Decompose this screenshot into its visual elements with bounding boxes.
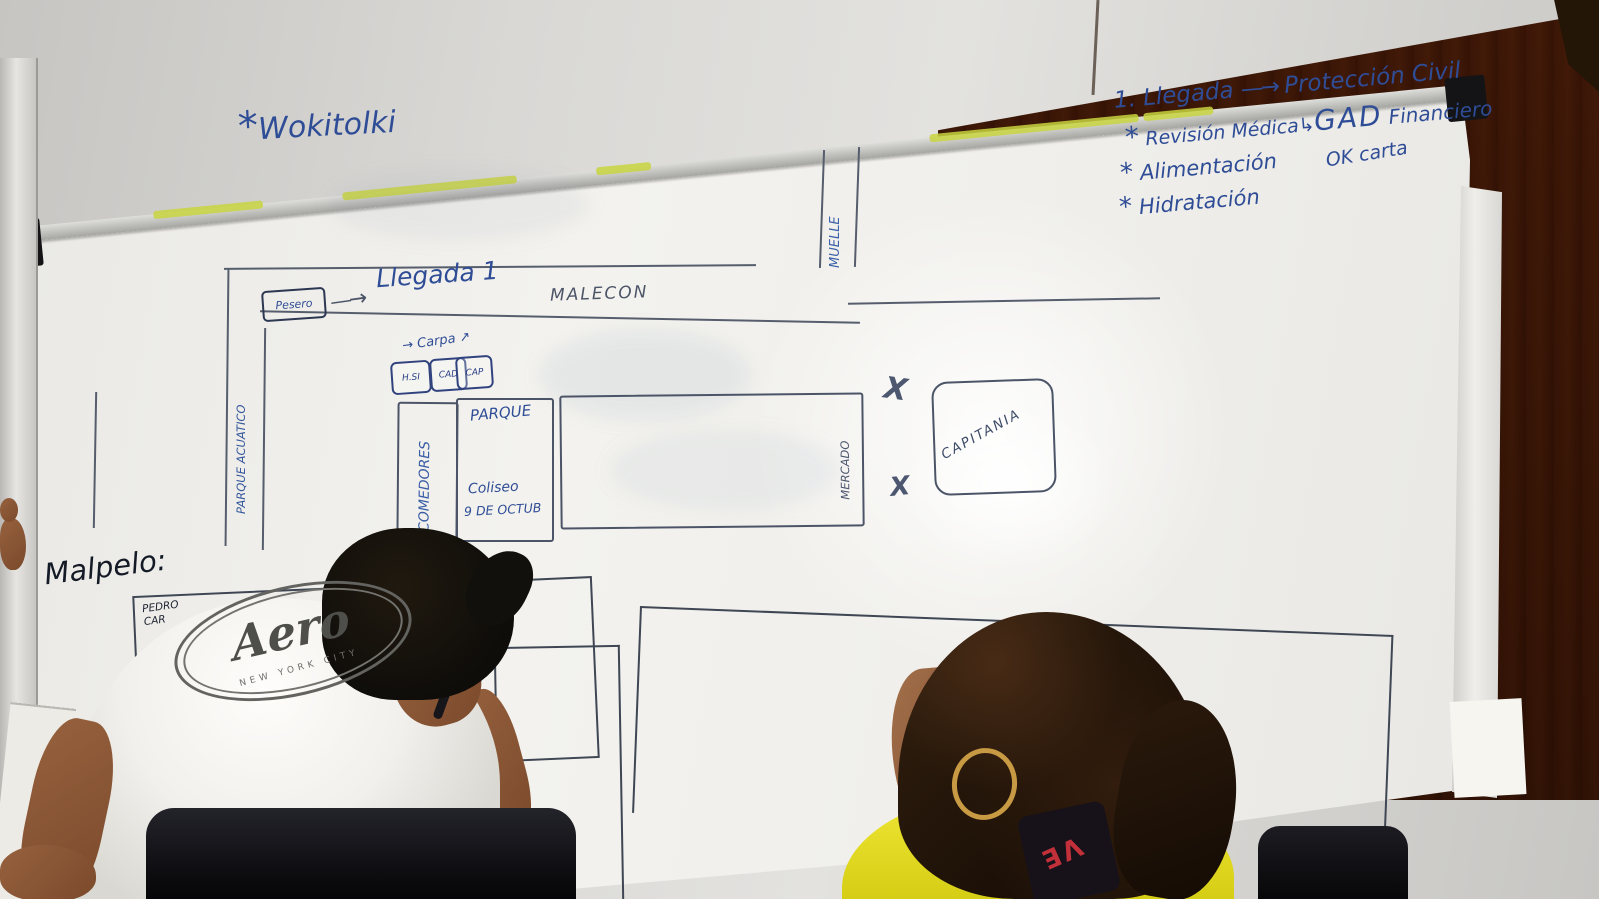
eraser-smudge bbox=[330, 170, 590, 240]
plan-step-number: 1. bbox=[1113, 86, 1137, 114]
lanyard: VE bbox=[1017, 800, 1122, 899]
central-block: MERCADO bbox=[559, 392, 864, 529]
lanyard-letters: VE bbox=[1034, 830, 1086, 875]
parque-acuatico-label: PARQUE ACUATICO bbox=[234, 362, 248, 514]
asterisk-bullet: * bbox=[1118, 192, 1134, 223]
pesero-box: Pesero bbox=[261, 287, 327, 322]
parque-coliseo-block: PARQUE Coliseo 9 DE OCTUB bbox=[456, 398, 554, 542]
comedores-block: COMEDORES bbox=[396, 402, 458, 543]
x-mark: X bbox=[882, 371, 910, 409]
hand-finger-tip bbox=[0, 498, 18, 522]
arrow-hook-icon: ↳ bbox=[1298, 114, 1316, 137]
arrow-up-right-icon: ↗ bbox=[459, 329, 472, 345]
coliseo-label-line2: 9 DE OCTUB bbox=[464, 500, 542, 519]
plan-target-financiero: Financiero bbox=[1388, 96, 1494, 129]
rail-highlight-strip bbox=[153, 200, 263, 219]
photo-scene: *Wokitolki 1. Llegada —→ Protección Civi… bbox=[0, 0, 1599, 899]
arrow-right-icon: —→ bbox=[1240, 74, 1278, 103]
arrow-right-icon: → bbox=[401, 337, 414, 353]
asterisk-bullet: * bbox=[237, 103, 259, 150]
plan-target-gad: GAD bbox=[1313, 99, 1384, 138]
pesero-label: Pesero bbox=[275, 297, 313, 313]
mercado-label: MERCADO bbox=[837, 405, 852, 500]
parque-label: PARQUE bbox=[469, 401, 532, 424]
asterisk-bullet: * bbox=[1119, 158, 1135, 189]
tent-box-hsi: H.SI bbox=[390, 360, 432, 396]
comedores-label: COMEDORES bbox=[416, 412, 433, 532]
chair-back-left bbox=[146, 808, 576, 899]
malecon-label: MALECON bbox=[550, 282, 649, 305]
tent-box-label: CAP bbox=[465, 367, 484, 378]
walkie-note: *Wokitolki bbox=[237, 96, 397, 150]
rail-highlight-strip bbox=[596, 162, 652, 175]
x-mark: X bbox=[888, 471, 911, 503]
plan-step-llegada: Llegada bbox=[1142, 77, 1235, 111]
coliseo-label-line1: Coliseo bbox=[468, 479, 519, 498]
tent-box-label: H.SI bbox=[402, 372, 421, 383]
walkie-label: Wokitolki bbox=[257, 105, 397, 147]
pesero-arrow-icon: —→ bbox=[328, 286, 366, 316]
plan-note-ok-carta: OK carta bbox=[1324, 137, 1409, 172]
muelle-label: MUELLE bbox=[828, 168, 843, 268]
capitania-block: CAPITANIA bbox=[931, 378, 1057, 496]
chair-back-right bbox=[1258, 826, 1408, 899]
tent-box-cap: CAP bbox=[455, 355, 494, 391]
wall-crack bbox=[1092, 0, 1100, 95]
capitania-label: CAPITANIA bbox=[939, 406, 1024, 463]
asterisk-bullet: * bbox=[1124, 120, 1141, 154]
paper-on-right-edge bbox=[1450, 698, 1527, 798]
plan-item-alimentacion: Alimentación bbox=[1139, 149, 1278, 185]
